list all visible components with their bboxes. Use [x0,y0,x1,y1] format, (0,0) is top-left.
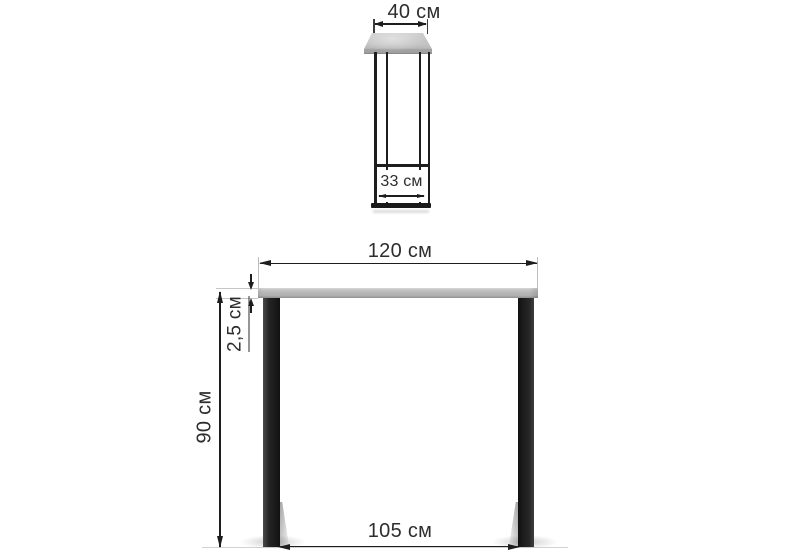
front-thickness-label: 2,5 см [225,296,250,352]
front-tabletop [258,288,538,298]
front-height-label: 90 см [194,390,217,443]
left-foot-shade [280,502,289,546]
front-base-width-label: 105 см [355,520,445,543]
front-width-label: 120 см [355,240,445,263]
thickness-arrow-up-icon [250,306,252,313]
front-view-diagram: 120 см 2,5 см 90 см 105 см [0,0,800,560]
thickness-arrow-down-icon [250,274,252,282]
right-foot-shade [509,502,518,546]
dimension-diagram: 40 см 33 см 120 см [0,0,800,560]
front-right-leg [518,298,534,547]
front-base-width-arrow-icon [279,546,519,548]
front-height-arrow-icon [219,292,221,547]
front-left-leg [263,298,280,547]
front-width-arrow-icon [260,263,537,265]
